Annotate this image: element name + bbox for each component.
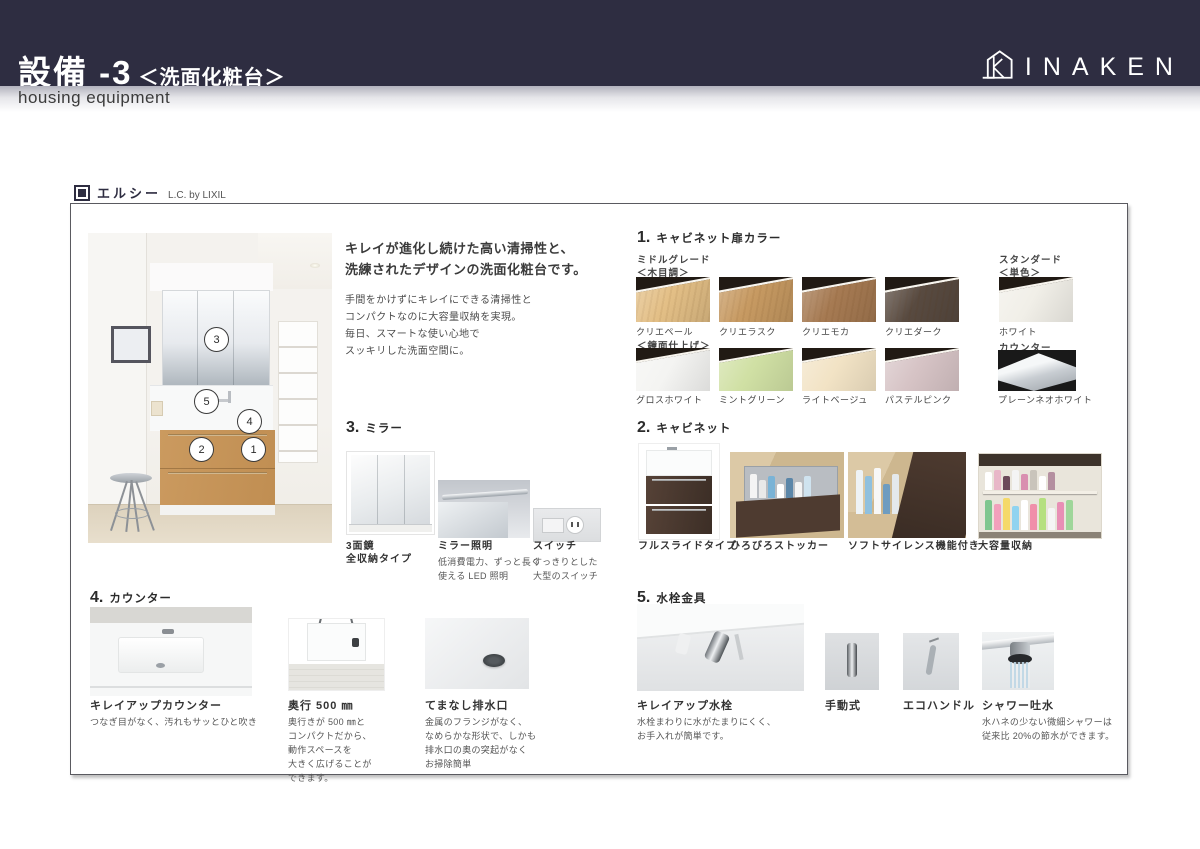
photo-upper-cabinet xyxy=(150,263,273,291)
drawer-split xyxy=(160,468,275,469)
swatch-label: グロスホワイト xyxy=(636,393,703,406)
brand-name: INAKEN xyxy=(1025,53,1184,82)
intro-headline-line2: 洗練されたデザインの洗面化粧台です。 xyxy=(345,259,587,280)
swatch-label: ミントグリーン xyxy=(719,393,785,406)
depth500-label: 奥行 500 ㎜ xyxy=(288,700,353,714)
callout-3-number: 3 xyxy=(213,334,219,346)
desc-line: 動作スペースを xyxy=(288,744,372,758)
desc-line: 水栓まわりに水がたまりにくく、 xyxy=(637,716,776,730)
drawer-front-panel xyxy=(736,494,840,537)
section2-number: 2. xyxy=(637,419,650,437)
desc-line: つなぎ目がなく、汚れもサッとひと吹き xyxy=(90,716,257,730)
eco-label: エコハンドル xyxy=(903,700,975,714)
drawer-handle xyxy=(652,509,706,511)
faucet-spout xyxy=(704,630,731,664)
kireiup-counter-photo xyxy=(90,607,252,696)
kireiup-faucet-label: キレイアップ水栓 xyxy=(637,700,733,714)
photo-wall-art xyxy=(111,326,151,363)
swatch-creapale xyxy=(636,277,710,322)
counter-edge xyxy=(90,686,252,688)
bottles-group xyxy=(985,496,1073,530)
swatch-glosswhite xyxy=(636,348,710,391)
swatch-creadark xyxy=(885,277,959,322)
shelf-divider xyxy=(983,491,1097,494)
shower-desc: 水ハネの少ない微細シャワーは 従来比 20%の節水ができます。 xyxy=(982,716,1114,744)
mirror-seam xyxy=(377,455,378,524)
switch-desc: すっきりとした 大型のスイッチ xyxy=(533,556,598,584)
drawer-front-panel xyxy=(892,452,966,538)
drainhole-desc: 金属のフランジがなく、 なめらかな形状で、しかも 排水口の奥の突起がなく お掃除… xyxy=(425,716,536,772)
switch-label: スイッチ xyxy=(533,541,577,554)
softsilence-photo xyxy=(848,452,966,538)
grade-middle-label: ミドルグレード xyxy=(637,252,711,266)
desc-line: 排水口の奥の突起がなく xyxy=(425,744,536,758)
desc-line: できます。 xyxy=(288,772,372,786)
callout-2-number: 2 xyxy=(198,444,204,456)
swatch-pastelpink xyxy=(885,348,959,391)
kireiup-faucet-desc: 水栓まわりに水がたまりにくく、 お手入れが簡単です。 xyxy=(637,716,776,744)
swatch-counter xyxy=(998,350,1076,391)
intro-headline: キレイが進化し続けた高い清掃性と、 洗練されたデザインの洗面化粧台です。 xyxy=(345,238,587,281)
bottles-group xyxy=(856,466,899,514)
shower-label: シャワー吐水 xyxy=(982,700,1054,714)
mirror-seam xyxy=(233,291,234,386)
mirror-seam xyxy=(197,291,198,386)
led-bar xyxy=(442,489,528,500)
vanity-top xyxy=(646,450,712,476)
mirror-light-label: ミラー照明 xyxy=(438,541,493,554)
eco-handle-photo xyxy=(903,633,959,690)
mirror3-label-line2: 全収納タイプ xyxy=(346,554,412,567)
desc-line: 大型のスイッチ xyxy=(533,570,598,584)
section4-heading: 4. カウンター xyxy=(90,589,172,607)
outlet-circle xyxy=(566,516,584,534)
cabinet-bottom xyxy=(979,532,1101,538)
intro-body-line: コンパクトなのに大容量収納を実現。 xyxy=(345,309,532,326)
photo-toe-kick xyxy=(160,505,275,515)
photo-outlet xyxy=(151,401,163,416)
desc-line: すっきりとした xyxy=(533,556,598,570)
drain-dot xyxy=(156,663,165,668)
callout-1-number: 1 xyxy=(250,444,256,456)
section3-number: 3. xyxy=(346,419,359,437)
swatch-mintgreen xyxy=(719,348,793,391)
tile-wall xyxy=(289,664,384,690)
under-counter xyxy=(307,623,366,661)
callout-5-number: 5 xyxy=(203,396,209,408)
intro-body: 手間をかけずにキレイにできる清掃性と コンパクトなのに大容量収納を実現。 毎日、… xyxy=(345,292,532,360)
swatch-white xyxy=(999,277,1073,322)
photo-faucet xyxy=(228,391,231,403)
callout-1: 1 xyxy=(241,437,266,462)
stool-ring xyxy=(115,508,149,519)
section4-title: カウンター xyxy=(109,590,172,606)
handle-mark xyxy=(929,637,939,642)
drawer-front xyxy=(646,476,712,504)
section3-title: ミラー xyxy=(365,420,403,436)
mirror3-label: 3面鏡 全収納タイプ xyxy=(346,541,412,566)
manual-handle xyxy=(847,643,857,677)
depth500-desc: 奥行きが 500 ㎜と コンパクトだから、 動作スペースを 大きく広げることが … xyxy=(288,716,372,786)
header-shadow-band xyxy=(0,86,1200,112)
desc-line: 使える LED 照明 xyxy=(438,570,540,584)
drain-hole xyxy=(483,654,505,667)
swatch-label: パステルピンク xyxy=(885,393,952,406)
kireiup-counter-label: キレイアップカウンター xyxy=(90,700,222,714)
desc-line: 水ハネの少ない微細シャワーは xyxy=(982,716,1114,730)
swatch-crearusk xyxy=(719,277,793,322)
swatch-creamocha xyxy=(802,277,876,322)
callout-4: 4 xyxy=(237,409,262,434)
softsilence-label: ソフトサイレンス機能付き xyxy=(848,541,980,554)
swatch-label: プレーンネオホワイト xyxy=(998,393,1092,406)
shower-photo xyxy=(982,632,1054,690)
desc-line: お掃除簡単 xyxy=(425,758,536,772)
drain-fitting xyxy=(352,638,359,647)
section1-heading: 1. キャビネット扉カラー xyxy=(637,229,781,247)
stocker-photo xyxy=(730,452,844,538)
main-product-photo: 3 5 4 2 1 xyxy=(88,233,332,543)
product-title: エルシー L.C. by LIXIL xyxy=(74,183,226,202)
swatch-lightbeige xyxy=(802,348,876,391)
drainhole-photo xyxy=(425,618,529,689)
catalog-page: 設備 -3 ＜洗面化粧台＞ INAKEN housing equipment エ… xyxy=(0,0,1200,849)
mirror3-photo xyxy=(346,451,435,535)
swatch-label: クリエモカ xyxy=(802,325,850,338)
kireiup-counter-desc: つなぎ目がなく、汚れもサッとひと吹き xyxy=(90,716,257,730)
switch-plate xyxy=(542,518,564,533)
fullslide-photo xyxy=(638,443,720,540)
desc-line: なめらかな形状で、しかも xyxy=(425,730,536,744)
mirror3-base xyxy=(349,524,432,532)
callout-5: 5 xyxy=(194,389,219,414)
callout-4-number: 4 xyxy=(246,416,252,428)
faucet-base xyxy=(675,633,691,655)
intro-headline-line1: キレイが進化し続けた高い清掃性と、 xyxy=(345,238,587,259)
bottles-group xyxy=(750,472,811,498)
section4-number: 4. xyxy=(90,589,103,607)
depth500-photo xyxy=(288,618,385,691)
desc-line: コンパクトだから、 xyxy=(288,730,372,744)
mirror3-label-line1: 3面鏡 xyxy=(346,541,412,554)
open-flap xyxy=(979,454,1101,466)
mirror-light-desc: 低消費電力、ずっと長く 使える LED 照明 xyxy=(438,556,540,584)
swatch-label: クリエダーク xyxy=(885,325,942,338)
photo-shelf xyxy=(278,321,318,463)
callout-3: 3 xyxy=(204,327,229,352)
desc-line: 奥行きが 500 ㎜と xyxy=(288,716,372,730)
square-bullet-icon xyxy=(74,185,90,201)
section2-heading: 2. キャビネット xyxy=(637,419,731,437)
intro-body-line: 毎日、スマートな使い心地で xyxy=(345,326,532,343)
overflow-slot xyxy=(162,629,174,634)
kireiup-faucet-photo xyxy=(637,604,804,691)
water-stream xyxy=(1010,662,1030,688)
swatch-label: クリエラスク xyxy=(719,325,776,338)
product-name: エルシー xyxy=(97,183,161,202)
section3-heading: 3. ミラー xyxy=(346,419,403,437)
bottles-group xyxy=(985,468,1055,490)
downlight-icon xyxy=(310,263,320,268)
intro-body-line: スッキリした洗面空間に。 xyxy=(345,343,532,360)
product-name-sub: L.C. by LIXIL xyxy=(168,190,226,201)
desc-line: 金属のフランジがなく、 xyxy=(425,716,536,730)
fullslide-label: フルスライドタイプ xyxy=(638,541,737,554)
mirror-panel xyxy=(438,502,508,538)
callout-2: 2 xyxy=(189,437,214,462)
mirror-light-photo xyxy=(438,480,530,538)
intro-body-line: 手間をかけずにキレイにできる清掃性と xyxy=(345,292,532,309)
grade-standard-label: スタンダード xyxy=(999,252,1062,266)
page-subtitle-en: housing equipment xyxy=(18,88,170,108)
drawer-handle xyxy=(168,434,267,436)
mirror3-pane xyxy=(351,455,430,524)
swatch-label: クリエペール xyxy=(636,325,693,338)
faucet-lever xyxy=(734,634,743,660)
drawer-front xyxy=(646,506,712,534)
largecapacity-label: 大容量収納 xyxy=(978,541,1033,554)
mirror-seam xyxy=(404,455,405,524)
manual-handle-photo xyxy=(825,633,879,690)
section2-title: キャビネット xyxy=(656,420,731,436)
outlet-hole xyxy=(571,522,573,527)
largecapacity-photo xyxy=(978,453,1102,539)
brand-logo: INAKEN xyxy=(981,48,1184,87)
swatch-label: ホワイト xyxy=(999,325,1037,338)
eco-handle xyxy=(925,645,936,676)
desc-line: 低消費電力、ずっと長く xyxy=(438,556,540,570)
drawer-handle xyxy=(168,472,267,474)
section1-title: キャビネット扉カラー xyxy=(656,230,781,246)
stocker-label: ひろびろストッカー xyxy=(730,541,829,554)
desc-line: 大きく広げることが xyxy=(288,758,372,772)
section1-number: 1. xyxy=(637,229,650,247)
desc-line: お手入れが簡単です。 xyxy=(637,730,776,744)
drawer-handle xyxy=(652,479,706,481)
counter-slab xyxy=(998,350,1076,391)
outlet-hole xyxy=(577,522,579,527)
desc-line: 従来比 20%の節水ができます。 xyxy=(982,730,1114,744)
swatch-label: ライトベージュ xyxy=(802,393,868,406)
manual-label: 手動式 xyxy=(825,700,861,714)
drainhole-label: てまなし排水口 xyxy=(425,700,508,714)
house-logo-icon xyxy=(981,48,1015,87)
switch-photo xyxy=(533,508,601,542)
